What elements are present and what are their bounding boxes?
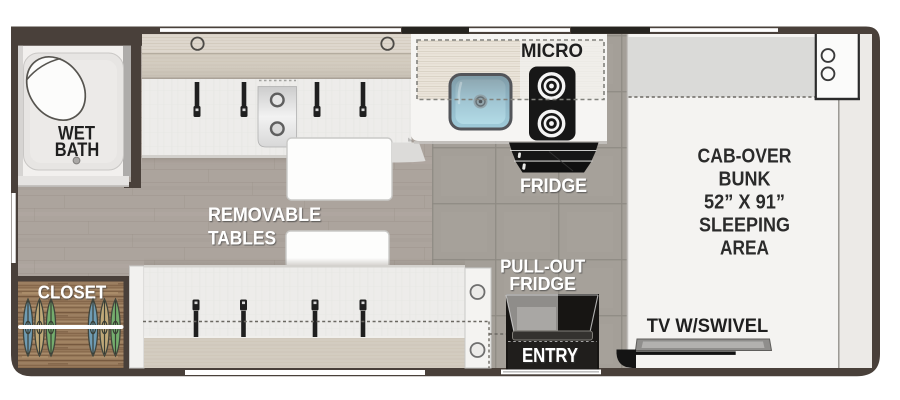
svg-text:TV W/SWIVEL: TV W/SWIVEL	[647, 316, 769, 337]
svg-text:ENTRY: ENTRY	[522, 345, 579, 367]
svg-text:52” X 91”: 52” X 91”	[704, 192, 785, 214]
svg-text:MICRO: MICRO	[521, 41, 583, 62]
svg-text:CAB-OVER: CAB-OVER	[698, 146, 792, 168]
svg-text:TABLES: TABLES	[208, 229, 276, 250]
svg-text:BUNK: BUNK	[719, 169, 771, 191]
svg-text:FRIDGE: FRIDGE	[509, 273, 576, 294]
svg-text:REMOVABLE: REMOVABLE	[208, 205, 321, 226]
svg-text:BATH: BATH	[55, 140, 100, 161]
svg-text:FRIDGE: FRIDGE	[520, 176, 587, 197]
svg-text:SLEEPING: SLEEPING	[699, 215, 790, 237]
svg-text:AREA: AREA	[720, 238, 769, 260]
svg-text:CLOSET: CLOSET	[38, 282, 107, 303]
